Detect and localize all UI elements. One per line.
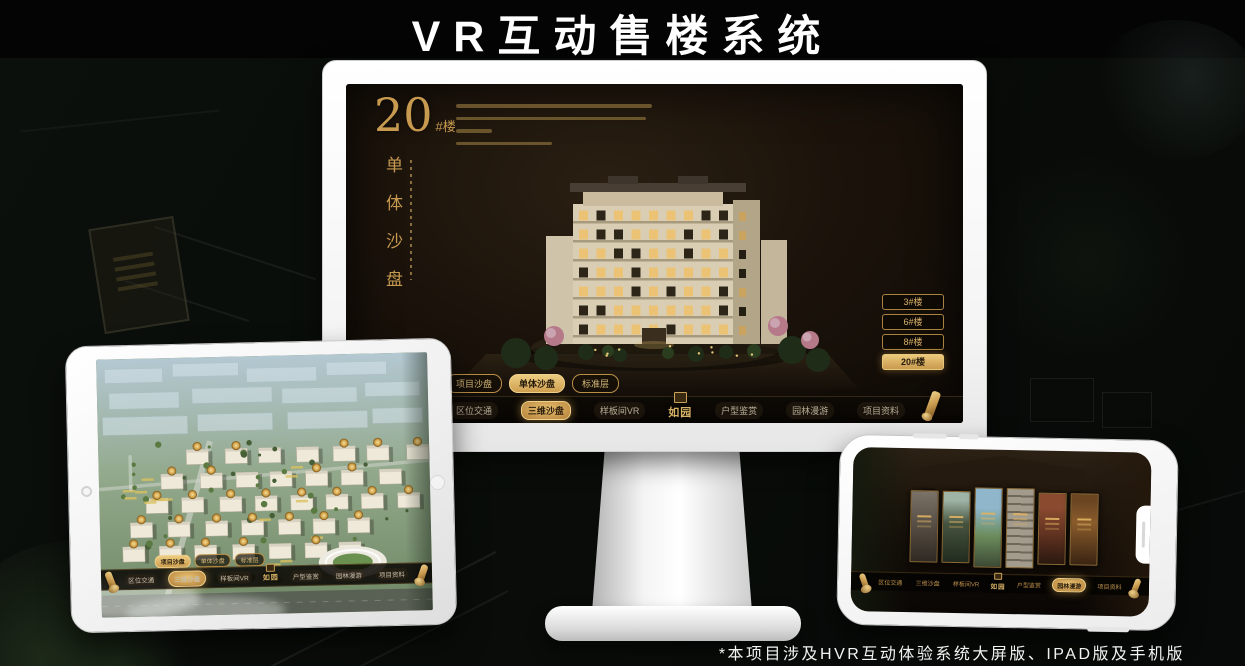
home-button[interactable]: [430, 474, 445, 489]
floor-button-3[interactable]: 8#楼: [882, 334, 944, 350]
bg-trees-patch: [980, 150, 1200, 370]
brand-logo: 如园: [262, 564, 278, 583]
scroll-icon[interactable]: [924, 390, 942, 418]
bg-building-outline: [1102, 392, 1152, 428]
floor-button-group: 3#楼6#楼8#楼20#楼: [882, 294, 944, 370]
nav-item-3[interactable]: 样板间VR: [951, 577, 982, 589]
bg-building-outline: [1030, 378, 1094, 422]
headline-subtitle: 单体沙盘: [380, 156, 405, 308]
nav-item-6[interactable]: 项目资料: [376, 567, 408, 580]
gallery-card-2[interactable]: [941, 491, 970, 564]
headline-subtitle-english: [410, 160, 412, 280]
monitor-stand-base: [545, 606, 801, 641]
tablet-screen: 项目沙盘单体沙盘标准层 区位交通三维沙盘样板间VR如园户型鉴赏园林漫游项目资料: [96, 352, 433, 617]
scroll-icon[interactable]: [859, 573, 870, 590]
floor-button-2[interactable]: 6#楼: [882, 314, 944, 330]
seal-icon: [994, 572, 1002, 579]
headline-subtitle-block: 单体沙盘: [380, 156, 412, 308]
view-tab-1[interactable]: 项目沙盘: [155, 555, 191, 569]
nav-item-4[interactable]: 户型鉴赏: [290, 569, 322, 582]
intro-paragraph-illegible: [456, 104, 652, 154]
scroll-icon[interactable]: [104, 570, 117, 589]
floor-button-4[interactable]: 20#楼: [882, 354, 944, 370]
tablet-device: 项目沙盘单体沙盘标准层 区位交通三维沙盘样板间VR如园户型鉴赏园林漫游项目资料: [65, 338, 457, 634]
brand-logo-text: 如园: [991, 580, 1006, 590]
nav-item-2[interactable]: 三维沙盘: [914, 577, 942, 589]
nav-item-3[interactable]: 样板间VR: [594, 402, 646, 419]
building-number: 20: [374, 92, 433, 138]
nav-item-5[interactable]: 园林漫游: [333, 568, 365, 581]
phone-screen: 区位交通三维沙盘样板间VR如园户型鉴赏园林漫游项目资料: [850, 447, 1151, 617]
gallery-card-1[interactable]: [909, 490, 938, 563]
view-tab-group: 项目沙盘单体沙盘标准层: [446, 374, 619, 393]
nav-item-4[interactable]: 户型鉴赏: [715, 402, 763, 419]
building-headline: 20 #楼: [374, 92, 456, 138]
nav-item-2[interactable]: 三维沙盘: [521, 401, 571, 420]
scroll-icon[interactable]: [416, 563, 428, 582]
nav-item-5[interactable]: 园林漫游: [1052, 578, 1086, 593]
phone-notch: [1135, 505, 1151, 563]
building-number-unit: #楼: [436, 116, 456, 135]
gallery-card-6[interactable]: [1069, 493, 1098, 566]
building-render: [458, 148, 858, 393]
gallery-card-5[interactable]: [1037, 493, 1066, 566]
gallery-card-4[interactable]: [1005, 488, 1035, 569]
poster-canvas: VR互动售楼系统 20 #楼 单体沙盘 3#楼6#楼8#楼20#楼 项目沙盘单体…: [0, 0, 1245, 666]
power-button[interactable]: [1087, 627, 1129, 633]
scroll-icon[interactable]: [1130, 578, 1141, 595]
nav-item-1[interactable]: 区位交通: [876, 576, 904, 588]
page-title: VR互动售楼系统: [0, 2, 1245, 64]
gallery-card-3[interactable]: [973, 487, 1003, 568]
brand-logo-text: 如园: [263, 573, 279, 583]
volume-button[interactable]: [959, 434, 979, 439]
phone-device: 区位交通三维沙盘样板间VR如园户型鉴赏园林漫游项目资料: [836, 434, 1179, 631]
floor-button-1[interactable]: 3#楼: [882, 294, 944, 310]
footnote: *本项目涉及HVR互动体验系统大屏版、IPAD版及手机版: [719, 640, 1185, 664]
monitor-stand-neck: [592, 448, 752, 612]
bg-road: [20, 110, 219, 133]
view-tab-3[interactable]: 标准层: [572, 374, 619, 393]
bg-plaque: [88, 216, 190, 334]
nav-item-4[interactable]: 户型鉴赏: [1015, 579, 1043, 591]
brand-logo: 如园: [668, 392, 692, 420]
seal-icon: [266, 564, 275, 572]
nav-item-5[interactable]: 园林漫游: [786, 402, 834, 419]
brand-logo: 如园: [991, 572, 1006, 590]
nav-item-1[interactable]: 区位交通: [125, 573, 157, 586]
seal-icon: [674, 392, 687, 403]
nav-item-2[interactable]: 三维沙盘: [168, 570, 206, 587]
nav-item-6[interactable]: 项目资料: [1095, 580, 1123, 592]
scene-card-gallery: [909, 486, 1099, 570]
brand-logo-text: 如园: [668, 404, 692, 420]
view-tab-1[interactable]: 项目沙盘: [446, 374, 502, 393]
volume-button[interactable]: [913, 433, 947, 439]
view-tab-3[interactable]: 标准层: [235, 553, 265, 567]
front-camera-icon: [81, 485, 92, 496]
view-tab-2[interactable]: 单体沙盘: [195, 554, 231, 568]
nav-item-3[interactable]: 样板间VR: [217, 571, 252, 584]
nav-item-1[interactable]: 区位交通: [450, 402, 498, 419]
nav-item-6[interactable]: 项目资料: [857, 402, 905, 419]
view-tab-2[interactable]: 单体沙盘: [509, 374, 565, 393]
